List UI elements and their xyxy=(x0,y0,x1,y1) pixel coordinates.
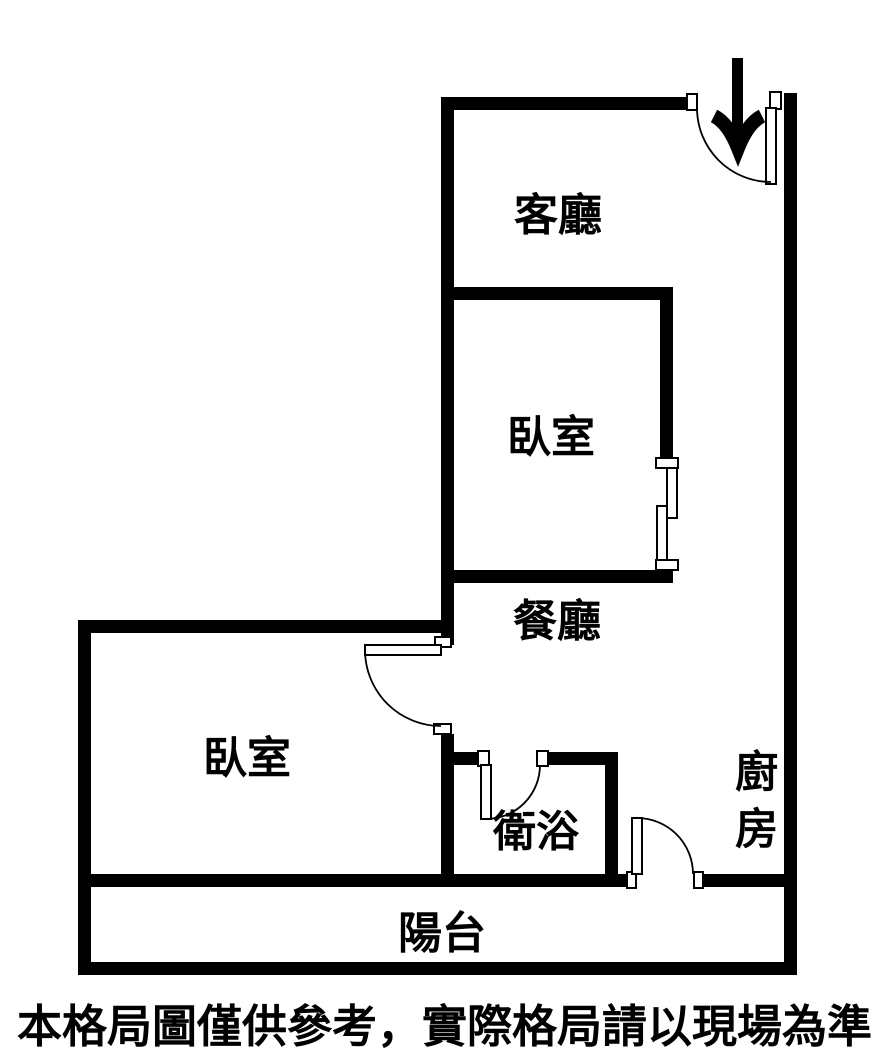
bedroom-left-door xyxy=(365,645,441,726)
wall-bathroom-top-left xyxy=(441,752,483,765)
balcony-door-swing xyxy=(637,818,693,874)
wall-upper-left xyxy=(441,97,454,645)
room-label-balcony: 陽台 xyxy=(398,911,486,957)
entrance-jamb-right xyxy=(770,92,781,109)
wall-bedroom-mid-right xyxy=(660,287,673,459)
balcony-door xyxy=(632,818,693,874)
bathroom-door-jamb-left xyxy=(478,751,489,766)
wall-right-outer xyxy=(784,93,797,975)
wall-bedroom-mid-bottom xyxy=(441,570,673,583)
sliding-window-cap-bottom xyxy=(656,560,678,570)
wall-bedroom-left-top xyxy=(78,620,454,633)
bathroom-door-jamb-right xyxy=(537,751,548,766)
room-label-living-room: 客廳 xyxy=(514,193,602,239)
sliding-window-panel-left xyxy=(657,506,667,563)
wall-top xyxy=(441,97,688,110)
room-label-kitchen: 廚房 xyxy=(729,749,774,863)
walls xyxy=(78,93,797,975)
sliding-window-panel-right xyxy=(667,466,677,518)
room-label-bedroom-upper: 臥室 xyxy=(507,415,595,461)
balcony-door-jamb-right xyxy=(694,872,703,888)
sliding-window-cap-top xyxy=(656,458,678,468)
entrance-door-leaf xyxy=(766,108,776,184)
bathroom-door-leaf xyxy=(481,765,491,819)
bedroom-left-door-leaf xyxy=(365,645,441,655)
room-label-bedroom-left: 臥室 xyxy=(203,736,291,782)
wall-balcony-bottom xyxy=(78,962,797,975)
disclaimer-text: 本格局圖僅供參考，實際格局請以現場為準 xyxy=(17,1003,872,1051)
floorplan-drawing xyxy=(0,0,889,1062)
wall-bedroom-mid-top xyxy=(441,287,673,300)
wall-balcony-top-right xyxy=(696,874,797,887)
floorplan-canvas: 客廳 臥室 餐廳 臥室 衛浴 廚房 陽台 本格局圖僅供參考，實際格局請以現場為準 xyxy=(0,0,889,1062)
wall-balcony-top-left xyxy=(78,874,633,887)
wall-left-outer xyxy=(78,620,91,975)
entrance-arrow-icon xyxy=(714,58,762,148)
wall-bathroom-right xyxy=(605,752,618,887)
room-label-dining-room: 餐廳 xyxy=(513,599,601,645)
sliding-window xyxy=(656,458,678,570)
room-label-bathroom: 衛浴 xyxy=(493,810,579,855)
bedroom-left-door-swing xyxy=(365,650,441,726)
balcony-door-leaf xyxy=(632,818,642,874)
entrance-jamb-left xyxy=(687,94,697,110)
